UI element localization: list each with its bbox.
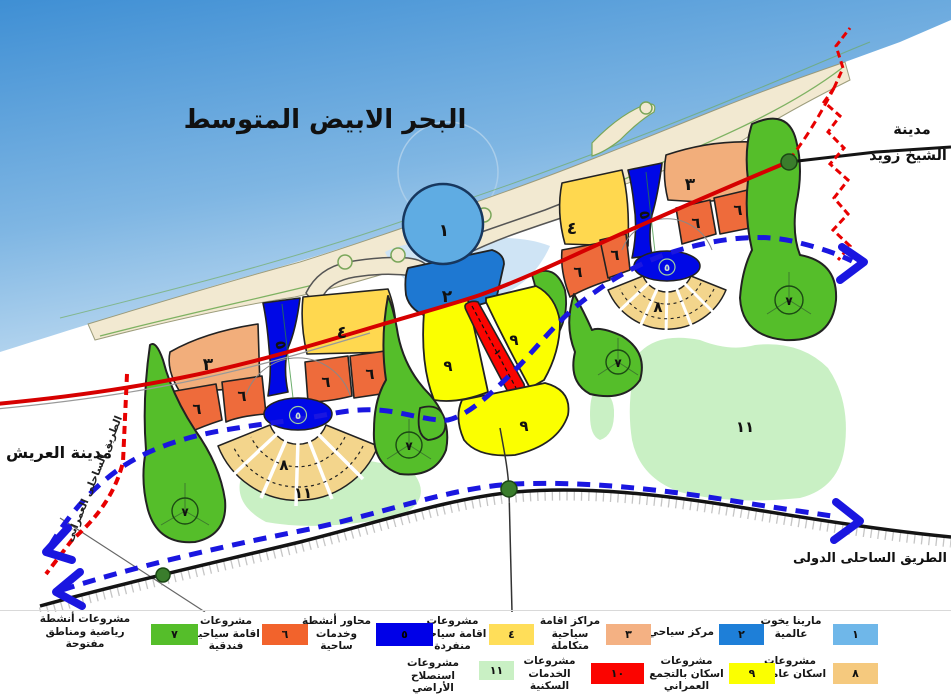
legend-label-9: مشروعات اسكان بالتجمع العمراني (646, 655, 727, 693)
num-5-hub-east: ٥ (664, 263, 670, 274)
num-7-east-right: ٧ (785, 294, 793, 308)
city-east-label-2: الشيخ زويد (869, 148, 947, 164)
num-1-marina: ١ (439, 221, 449, 241)
legend-num-2: ٢ (738, 628, 745, 641)
num-6d-east: ٦ (733, 201, 742, 219)
legend-swatch-6: ٦ (262, 624, 308, 645)
num-6a-west: ٦ (192, 400, 201, 418)
num-6b-west: ٦ (237, 387, 246, 405)
num-3-east: ٣ (685, 175, 696, 195)
legend-separator (0, 610, 951, 611)
legend-num-3: ٣ (625, 628, 632, 641)
legend-num-8: ٨ (852, 667, 859, 680)
legend-swatch-9: ٩ (729, 663, 775, 684)
legend-num-10: ١٠ (611, 667, 624, 680)
legend-swatch-1: ١ (833, 624, 878, 645)
num-7-east-left: ٧ (614, 356, 622, 370)
legend-label-5: محاور أنشطة وخدمات ساحية (299, 615, 374, 653)
legend-num-9: ٩ (749, 667, 756, 680)
legend-label-3: مراكز اقامة سياحية متكاملة (536, 615, 604, 653)
red-jagged-boundary (824, 88, 850, 260)
legend-swatch-7: ٧ (151, 624, 198, 645)
num-6b-east: ٦ (610, 246, 619, 264)
masterplan-map-page: البحر الابيض المتوسط مدينة العريش مدينة … (0, 0, 951, 696)
sea-title: البحر الابيض المتوسط (184, 105, 467, 135)
spit-ring (640, 102, 652, 114)
num-5-hub-west: ٥ (295, 411, 301, 422)
legend-swatch-2: ٢ (719, 624, 764, 645)
num-6c-east: ٦ (691, 214, 700, 232)
num-7-west-left: ٧ (181, 505, 189, 519)
urban-road-arrow-east (840, 247, 864, 280)
legend-swatch-11: ١١ (479, 661, 514, 680)
legend-num-11: ١١ (490, 664, 503, 677)
legend-label-2: مركز سياحي (645, 626, 717, 639)
green-blob-below-9 (419, 407, 446, 441)
num-6a-east: ٦ (573, 263, 582, 281)
legend-label-10: مشروعات الخدمات السكنية (510, 655, 589, 693)
legend-num-6: ٦ (282, 628, 289, 641)
num-2-centre: ٢ (442, 287, 453, 307)
legend-swatch-10: ١٠ (591, 663, 644, 684)
num-9-left: ٩ (443, 357, 452, 375)
legend-swatch-4: ٤ (489, 624, 534, 645)
num-3-west: ٣ (203, 355, 214, 375)
legend-swatch-5: ٥ (376, 623, 433, 646)
num-9-bottom: ٩ (519, 417, 528, 435)
num-9-right: ٩ (509, 331, 518, 349)
legend-label-11: مشروعات استصلاح الأراضي (390, 657, 476, 695)
zone-11-sliver (590, 391, 614, 440)
num-7-west-right: ٧ (405, 439, 413, 453)
num-4-east: ٤ (567, 219, 577, 239)
gray-connector-centre-down (509, 490, 512, 612)
legend-num-7: ٧ (171, 628, 178, 641)
legend-num-1: ١ (852, 628, 859, 641)
intl-road-label: الطريق الساحلى الدولى (793, 551, 947, 566)
num-8-west: ٨ (279, 456, 288, 474)
num-6c-west: ٦ (321, 373, 330, 391)
num-11-west: ١١ (294, 484, 312, 502)
city-east-label-1: مدينة (893, 122, 931, 138)
num-4-west: ٤ (337, 323, 347, 343)
legend-swatch-3: ٣ (606, 624, 651, 645)
masterplan-map: البحر الابيض المتوسط مدينة العريش مدينة … (0, 0, 951, 612)
legend-label-6: مشروعات اقامة سياحية فندقية (192, 615, 260, 653)
num-8-east: ٨ (653, 298, 662, 316)
num-11-east: ١١ (736, 418, 754, 436)
legend-label-7: مشروعات أنشطة رياضية ومناطق مفتوحة (35, 613, 135, 651)
legend-num-4: ٤ (508, 628, 515, 641)
legend-swatch-8: ٨ (833, 663, 878, 684)
legend-num-5: ٥ (401, 628, 408, 641)
num-6d-west: ٦ (365, 365, 374, 383)
